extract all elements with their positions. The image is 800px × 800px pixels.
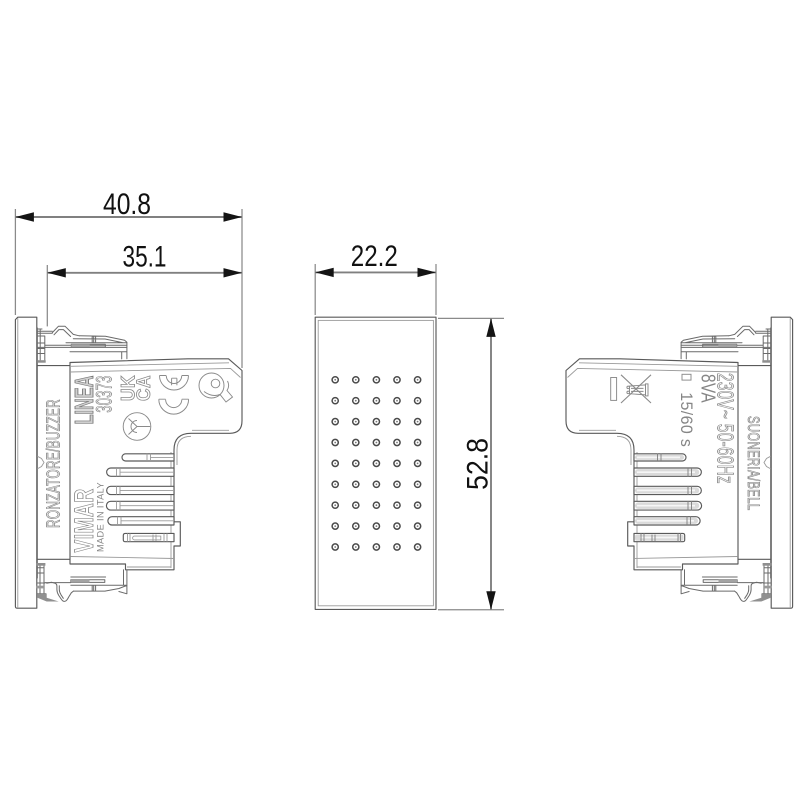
svg-text:CA: CA	[134, 375, 155, 401]
svg-text:22.2: 22.2	[351, 240, 398, 273]
svg-text:40.8: 40.8	[103, 188, 151, 221]
svg-text:52.8: 52.8	[462, 438, 495, 490]
svg-text:SUONERIA/BELL: SUONERIA/BELL	[744, 416, 763, 511]
svg-text:30373: 30373	[92, 375, 117, 412]
svg-text:35.1: 35.1	[123, 241, 167, 274]
svg-text:MADE IN ITALY: MADE IN ITALY	[95, 482, 106, 552]
svg-text:VIMAR: VIMAR	[69, 489, 99, 553]
svg-text:RONZATORE/BUZZER: RONZATORE/BUZZER	[43, 399, 63, 528]
svg-text:15/60 s: 15/60 s	[677, 392, 695, 447]
svg-text:8VA: 8VA	[697, 374, 719, 403]
